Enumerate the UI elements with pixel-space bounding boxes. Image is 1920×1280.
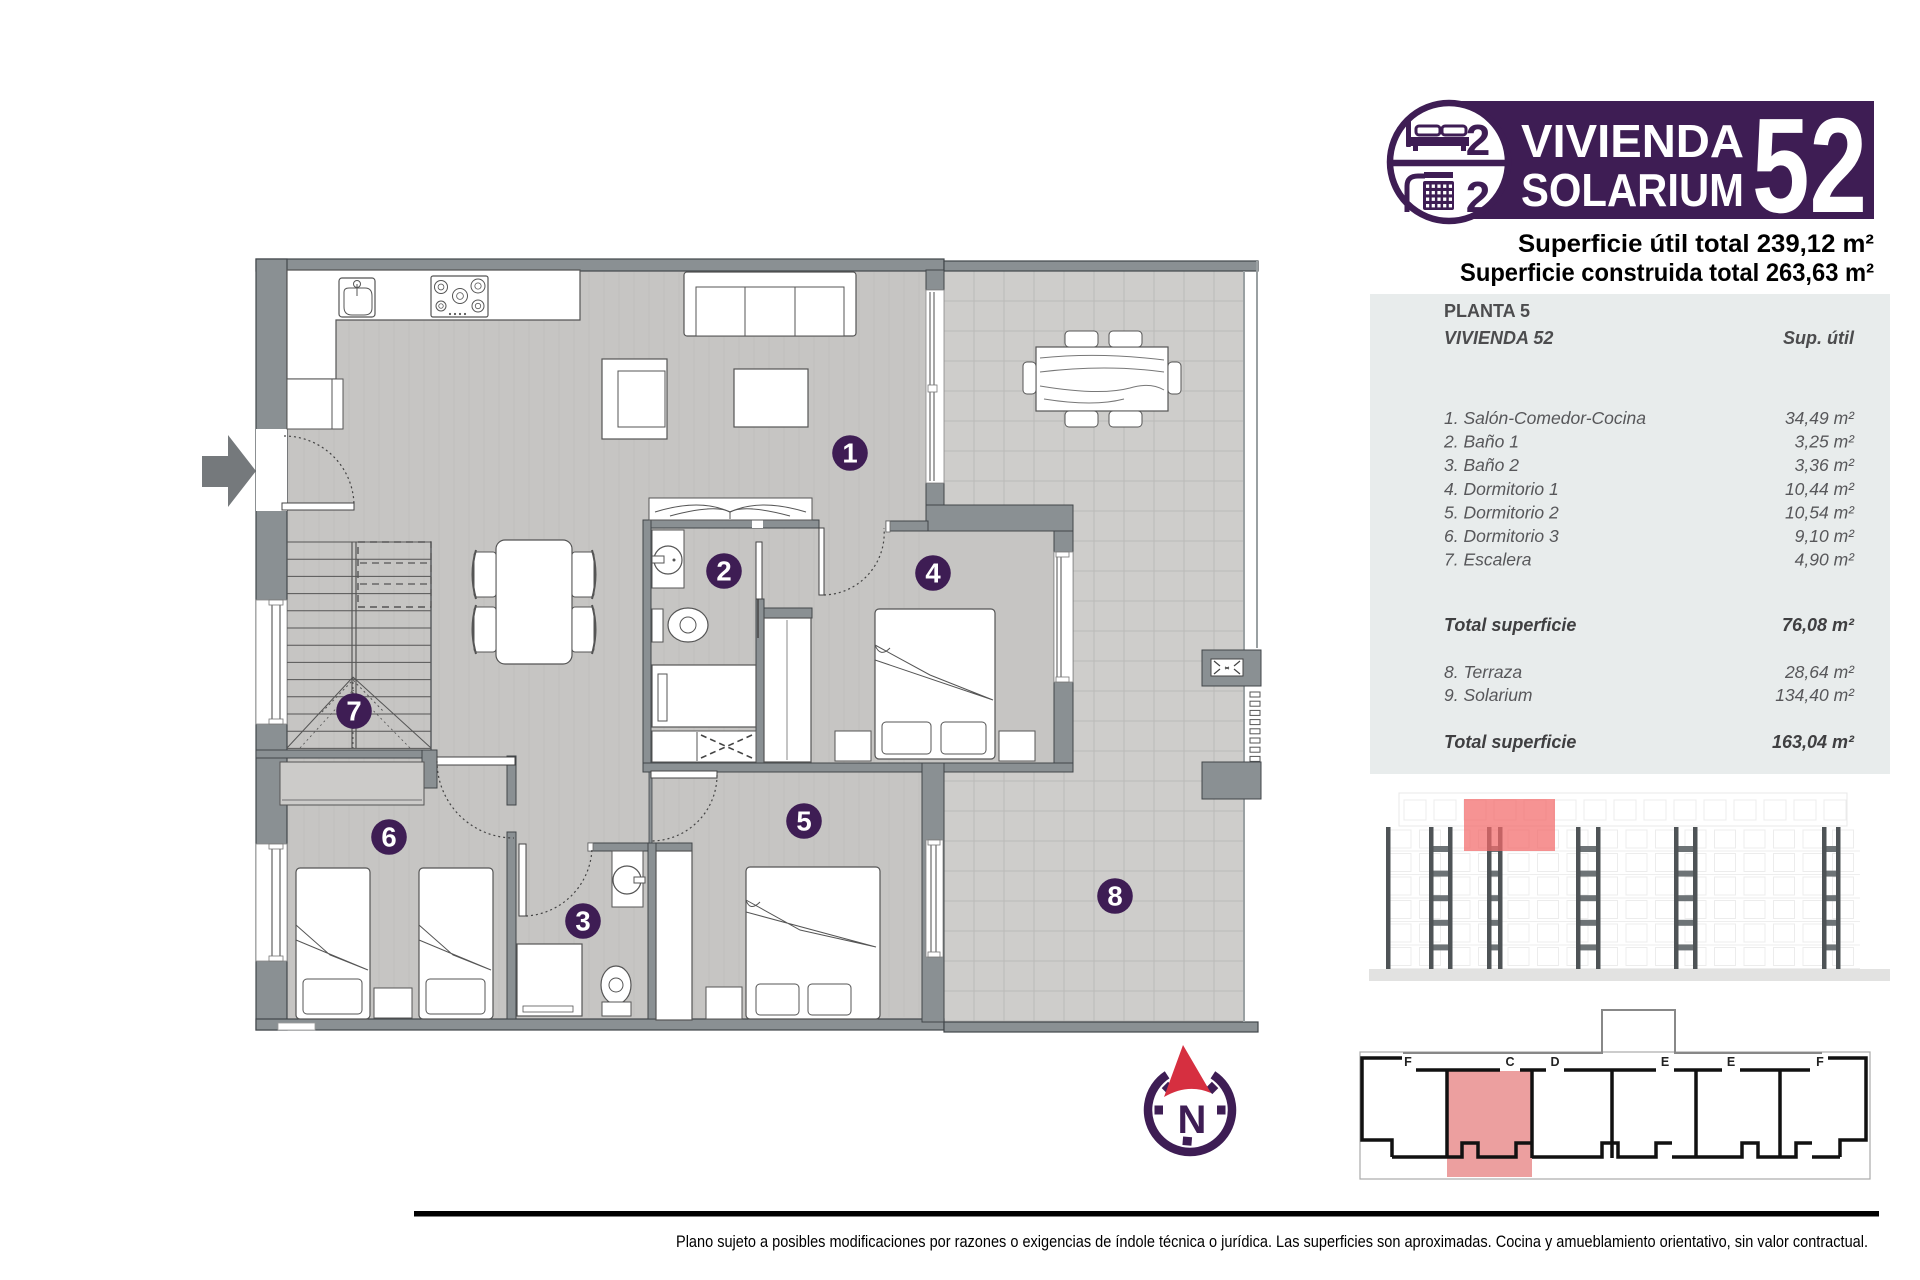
svg-text:10,54 m²: 10,54 m² (1785, 502, 1855, 522)
svg-text:Sup. útil: Sup. útil (1783, 328, 1855, 348)
svg-text:163,04 m²: 163,04 m² (1772, 732, 1855, 752)
svg-text:134,40 m²: 134,40 m² (1775, 685, 1855, 705)
svg-text:E: E (1661, 1055, 1669, 1069)
svg-text:D: D (1550, 1055, 1559, 1069)
svg-text:8: 8 (1107, 881, 1122, 912)
svg-text:7: 7 (346, 696, 361, 727)
svg-text:VIVIENDA 52: VIVIENDA 52 (1444, 328, 1553, 348)
svg-text:4: 4 (925, 558, 941, 589)
svg-text:3. Baño 2: 3. Baño 2 (1444, 455, 1519, 475)
svg-text:Superficie construida total 26: Superficie construida total 263,63 m² (1460, 259, 1874, 287)
svg-text:3,36 m²: 3,36 m² (1795, 455, 1855, 475)
svg-text:F: F (1404, 1055, 1412, 1069)
svg-text:F: F (1816, 1055, 1824, 1069)
svg-text:4,90 m²: 4,90 m² (1795, 550, 1855, 570)
svg-text:Total superficie: Total superficie (1444, 615, 1576, 635)
svg-text:2: 2 (716, 556, 731, 587)
svg-text:2: 2 (1466, 116, 1490, 165)
svg-text:6: 6 (381, 822, 396, 853)
svg-text:1: 1 (842, 438, 857, 469)
svg-text:10,44 m²: 10,44 m² (1785, 479, 1855, 499)
svg-text:VIVIENDA: VIVIENDA (1521, 115, 1744, 167)
svg-text:C: C (1505, 1055, 1514, 1069)
svg-text:Total superficie: Total superficie (1444, 732, 1576, 752)
svg-text:PLANTA 5: PLANTA 5 (1444, 301, 1530, 321)
svg-text:34,49 m²: 34,49 m² (1785, 408, 1855, 428)
svg-text:52: 52 (1752, 90, 1867, 241)
svg-text:4. Dormitorio 1: 4. Dormitorio 1 (1444, 479, 1559, 499)
svg-text:E: E (1727, 1055, 1735, 1069)
svg-text:1. Salón-Comedor-Cocina: 1. Salón-Comedor-Cocina (1444, 408, 1646, 428)
svg-text:3: 3 (575, 906, 590, 937)
svg-text:9,10 m²: 9,10 m² (1795, 526, 1855, 546)
svg-text:N: N (1178, 1098, 1207, 1142)
svg-text:28,64 m²: 28,64 m² (1784, 662, 1855, 682)
svg-text:Plano sujeto a posibles modifi: Plano sujeto a posibles modificaciones p… (676, 1233, 1868, 1251)
svg-text:5: 5 (796, 806, 811, 837)
svg-text:8. Terraza: 8. Terraza (1444, 662, 1522, 682)
svg-text:Superficie útil total 239,12 m: Superficie útil total 239,12 m² (1518, 230, 1874, 258)
svg-text:5. Dormitorio 2: 5. Dormitorio 2 (1444, 502, 1559, 522)
svg-text:76,08 m²: 76,08 m² (1782, 615, 1855, 635)
svg-text:2. Baño 1: 2. Baño 1 (1443, 432, 1519, 452)
svg-text:7. Escalera: 7. Escalera (1444, 550, 1532, 570)
svg-text:SOLARIUM: SOLARIUM (1521, 164, 1744, 216)
svg-text:6. Dormitorio 3: 6. Dormitorio 3 (1444, 526, 1559, 546)
svg-text:2: 2 (1466, 173, 1490, 222)
svg-text:3,25 m²: 3,25 m² (1795, 432, 1855, 452)
svg-text:9. Solarium: 9. Solarium (1444, 685, 1533, 705)
